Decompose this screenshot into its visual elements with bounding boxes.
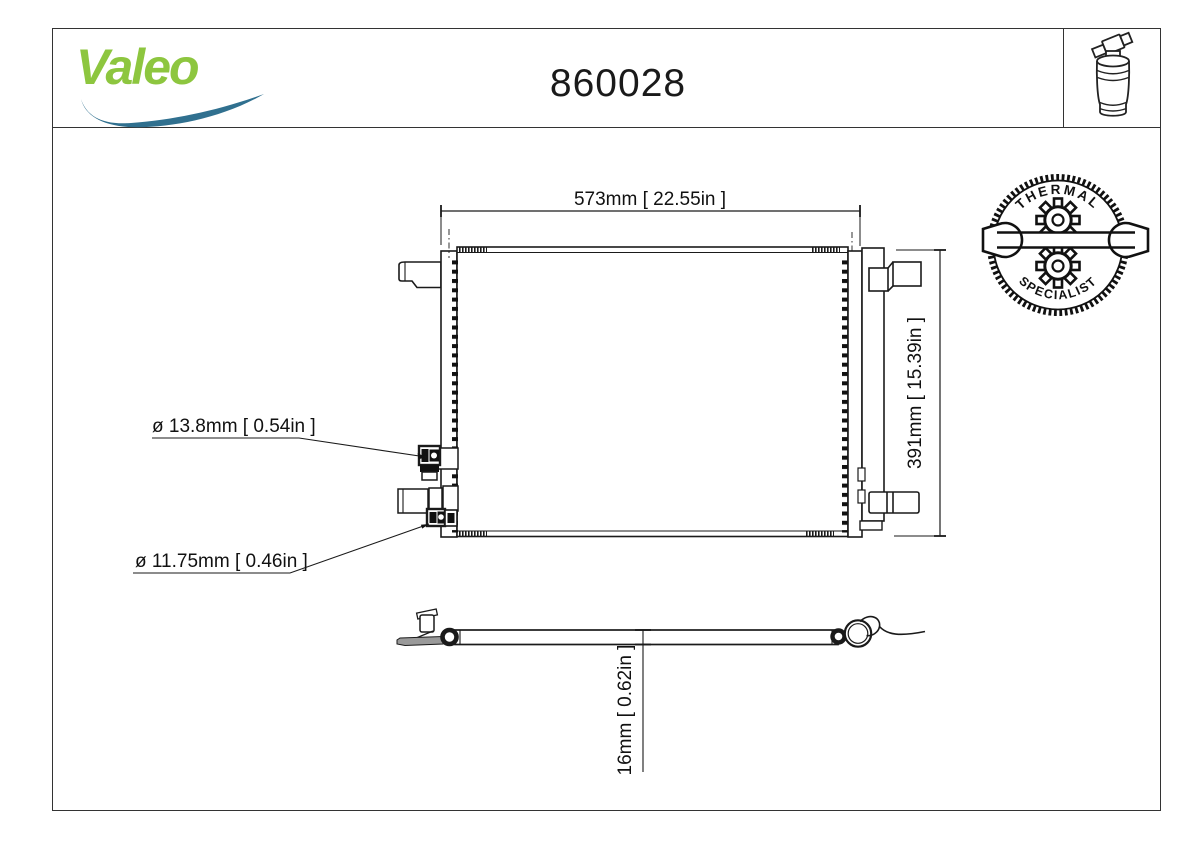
pipe-ring-left — [443, 630, 457, 644]
core — [457, 247, 848, 537]
dim-depth-label: 16mm [ 0.62in ] — [615, 645, 636, 776]
receiver-drier-icon — [1091, 31, 1133, 116]
condenser-drawing: THERMAL SPECIALIST 5 — [0, 0, 1200, 848]
side-view-left-fitting — [397, 609, 457, 646]
leader-upper-port: ø 13.8mm [ 0.54in ] — [152, 416, 426, 459]
dim-upper-port-label: ø 13.8mm [ 0.54in ] — [152, 416, 316, 437]
dim-lower-port-label: ø 11.75mm [ 0.46in ] — [135, 551, 308, 572]
bracket-bottom-right — [869, 492, 919, 513]
tube-ends-right — [842, 258, 848, 533]
leader-lower-port: ø 11.75mm [ 0.46in ] — [133, 524, 429, 573]
dim-width-label: 573mm [ 22.55in ] — [574, 189, 726, 210]
thermal-specialist-stamp: THERMAL SPECIALIST — [983, 177, 1148, 313]
dim-width: 573mm [ 22.55in ] — [441, 189, 860, 246]
gear-bottom-icon — [1037, 245, 1080, 288]
technical-drawing-sheet: Valeo 860028 — [0, 0, 1200, 848]
pipe-ring-right — [833, 631, 845, 643]
dim-height-label: 391mm [ 15.39in ] — [905, 317, 926, 469]
fitting-lower-port — [398, 486, 458, 526]
condenser-front-view: 573mm [ 22.55in ] 391mm [ 15.39in ] — [133, 189, 946, 573]
condenser-side-view: 16mm [ 0.62in ] — [397, 609, 925, 775]
side-view-right-fitting — [833, 617, 926, 647]
dim-depth: 16mm [ 0.62in ] — [615, 630, 651, 775]
